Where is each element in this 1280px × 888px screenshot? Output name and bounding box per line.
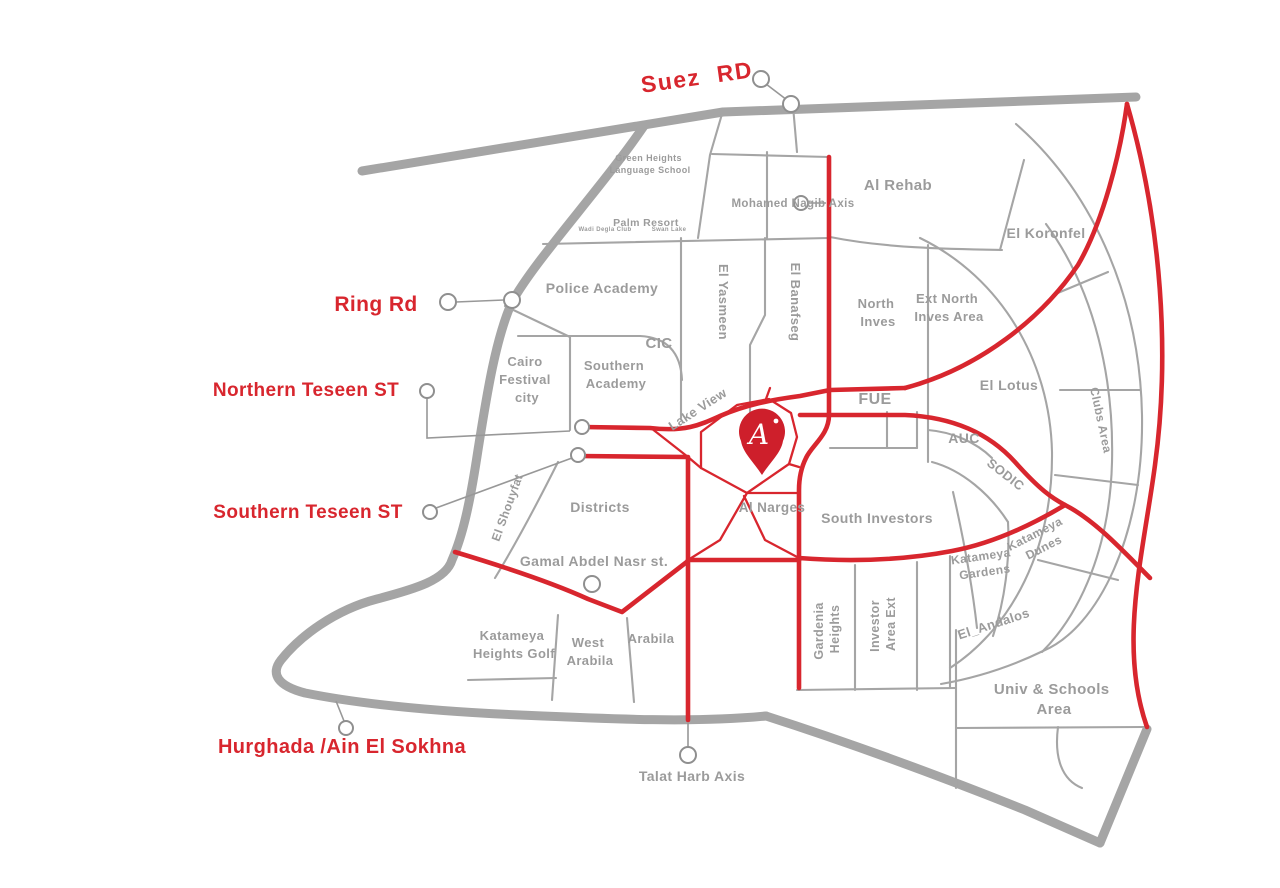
univ-small-shape <box>1057 727 1082 788</box>
southern-teseen-road <box>578 456 688 457</box>
ring-leader-line <box>456 300 504 302</box>
univ-bottom-boundary <box>956 727 1146 728</box>
cairo-festival-city-label: Cairo Festival city <box>499 354 555 405</box>
districts-label: Districts <box>570 499 630 515</box>
festival-top-boundary <box>505 306 570 337</box>
northern-teseen-node-outer <box>420 384 434 398</box>
al-rehab-label: Al Rehab <box>864 177 932 194</box>
swan-lake-label: Swan Lake <box>652 227 687 233</box>
suez-node-outer <box>753 71 769 87</box>
police-academy-top-boundary <box>543 238 829 244</box>
north-inves-label: North Inves <box>858 296 899 329</box>
location-pin: A <box>739 409 785 475</box>
map-canvas: Green Heights Language School Palm Resor… <box>0 0 1280 888</box>
ext-north-inves-label: Ext North Inves Area <box>914 291 984 324</box>
pin-letter: A <box>746 418 769 451</box>
south-strip-bottom-boundary <box>797 688 956 690</box>
ring-rd-label: Ring Rd <box>334 293 417 316</box>
mohamed-nagib-axis-label: Mohamed Nagib Axis <box>731 198 854 210</box>
east-boundary-stub-line <box>1100 729 1147 843</box>
naguib-zone-left-boundary <box>698 114 722 238</box>
cic-label: CIC <box>645 335 672 352</box>
southern-teseen-node-road <box>571 448 585 462</box>
project-street-5 <box>766 388 770 399</box>
el-lotus-label: El Lotus <box>980 377 1038 393</box>
wadi-degla-club-label: Wadi Degla Club <box>578 227 631 233</box>
investor-area-ext-label: Investor Area Ext <box>868 596 898 652</box>
suez-rd-label: Suez RD <box>639 56 754 97</box>
khg-inner-line <box>468 678 556 680</box>
auc-label: AUC <box>948 430 980 446</box>
southern-teseen-node-outer <box>423 505 437 519</box>
pin-letter-dot <box>774 419 779 424</box>
police-academy-label: Police Academy <box>546 280 658 296</box>
ring-radial-4 <box>1038 560 1118 580</box>
fue-label: FUE <box>858 391 891 408</box>
al-narges-label: Al Narges <box>739 500 806 515</box>
outer-ring-arc <box>941 124 1142 684</box>
yasmeen-banafseg-divider <box>750 238 765 420</box>
sodic-label: SODIC <box>984 455 1027 494</box>
northern-teseen-label: Northern Teseen ST <box>213 380 399 401</box>
ring-radial-1 <box>1053 272 1108 295</box>
talat-harb-axis-label: Talat Harb Axis <box>639 768 745 784</box>
suez-node-road <box>783 96 799 112</box>
northern-teseen-node-road <box>575 420 589 434</box>
el-banafseg-label: El Banafseg <box>788 263 803 342</box>
new-cairo-map: Green Heights Language School Palm Resor… <box>0 0 1280 888</box>
gamal-abdel-nasr-label: Gamal Abdel Nasr st. <box>520 553 668 569</box>
suez-leader-line <box>766 84 787 100</box>
ring-node-outer <box>440 294 456 310</box>
arabila-label: Arabila <box>628 631 675 646</box>
suez-road-line <box>362 97 1136 171</box>
south-investors-label: South Investors <box>821 510 933 526</box>
northeast-red-diagonal <box>905 104 1127 388</box>
project-street-1 <box>651 428 701 468</box>
southern-teseen-label: Southern Teseen ST <box>213 502 403 523</box>
naguib-zone-top-boundary <box>712 154 829 157</box>
hurghada-label: Hurghada /Ain El Sokhna <box>218 736 467 758</box>
gardenia-heights-label: Gardenia Heights <box>812 598 842 659</box>
gamal-node <box>584 576 600 592</box>
el-yasmeen-label: El Yasmeen <box>716 264 731 340</box>
ring-node-road <box>504 292 520 308</box>
south-east-boundary-line <box>766 716 1100 843</box>
southern-academy-label: Southern Academy <box>584 358 648 391</box>
talat-harb-node <box>680 747 696 763</box>
northern-teseen-leader-line <box>427 398 570 438</box>
gray-road-network <box>276 97 1147 843</box>
east-red-arc <box>1127 104 1162 727</box>
al-rehab-bottom-boundary <box>830 237 1002 250</box>
ring-radial-3 <box>1055 475 1138 485</box>
katameya-heights-golf-label: Katameya Heights Golf <box>473 628 555 661</box>
hurghada-node <box>339 721 353 735</box>
project-street-4 <box>789 464 799 467</box>
el-koronfel-label: El Koronfel <box>1006 225 1085 241</box>
univ-schools-area-label: Univ & Schools Area <box>994 681 1114 718</box>
west-arabila-label: West Arabila <box>567 635 614 668</box>
